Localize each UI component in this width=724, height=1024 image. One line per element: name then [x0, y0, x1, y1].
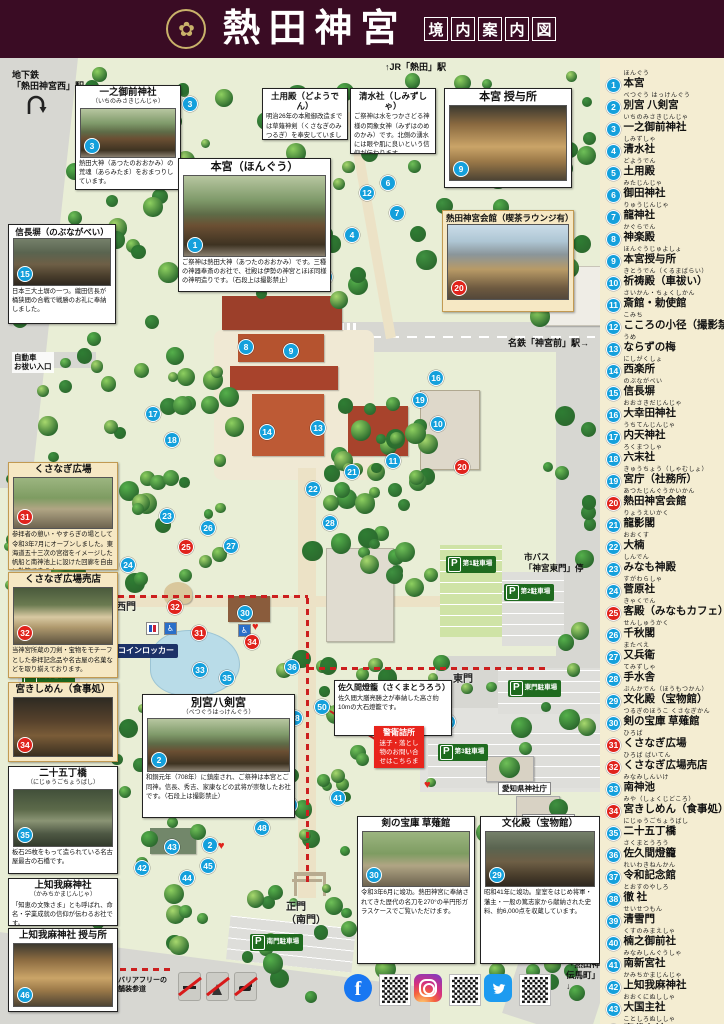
tree	[145, 315, 159, 329]
map-label-コインロッカー: コインロッカー	[114, 644, 178, 658]
tree	[177, 368, 195, 386]
legend-item-15: 15のぶながべい信長塀	[606, 379, 721, 401]
legend-item-name: 千秋閣	[624, 628, 670, 639]
info-box-title: 文化殿（宝物館）	[484, 819, 596, 830]
tree	[543, 462, 553, 472]
info-box-ichinomisaki: 一之御前神社（いちのみさきじんじゃ）3熱田大神（あつたのおおかみ）の荒魂（あらみ…	[75, 85, 181, 190]
map-marker-33: 33	[192, 662, 208, 678]
map-label-line: ↑JR「熱田」駅	[385, 62, 446, 73]
legend-item-name: 六末社	[624, 452, 663, 463]
info-box-title: 清水社（しみずしゃ）	[354, 91, 432, 111]
info-box-desc: 迷子・落とし物のお問い合せはこちらまで	[377, 739, 421, 768]
legend-item-text: きゅうちょう（しゃむしょ）宮庁（社務所）	[624, 467, 709, 485]
legend-item-text: うめならずの梅	[624, 335, 676, 353]
shrine-crest-icon: ✿	[166, 9, 206, 49]
legend-item-text: うちてんじんじゃ内天神社	[624, 423, 676, 441]
legend-item-number: 11	[606, 298, 621, 313]
subtitle-char: 内	[505, 17, 529, 41]
photo-marker-1: 1	[187, 237, 203, 253]
tree	[169, 936, 188, 955]
legend-item-name: 上知我麻神社	[624, 980, 687, 991]
legend-item-number: 27	[606, 650, 621, 665]
legend-item-36: 36さくまとうろう佐久間燈籠	[606, 841, 721, 863]
photo-marker-34: 34	[17, 737, 33, 753]
info-box-photo: 2	[147, 718, 290, 772]
legend-item-text: さくまとうろう佐久間燈籠	[624, 841, 677, 859]
tree	[405, 423, 426, 444]
info-box-kusanagi-hiroba: くさなぎ広場31参拝者の憩い・やすらぎの場として令和3年7月にオープンしました。…	[8, 462, 118, 570]
tree	[314, 925, 329, 940]
legend-item-9: 9ほんぐうじゅよしょ本宮授与所	[606, 247, 721, 269]
legend-item-number: 32	[606, 760, 621, 775]
tree	[342, 161, 354, 173]
map-label-line: 「神宮東門」停	[524, 563, 584, 574]
map-marker-7: 7	[389, 205, 405, 221]
legend-item-text: のぶながべい信長塀	[624, 379, 663, 397]
tree	[559, 709, 580, 730]
info-box-desc: 板石25枚をもって造られている名古屋最古の石橋です。	[12, 848, 114, 866]
legend-item-name: 土用殿	[624, 166, 657, 177]
legend-item-name: 神楽殿	[624, 232, 656, 243]
legend-item-text: どようでん土用殿	[624, 159, 657, 177]
legend-item-39: 39せいせつもん清雪門	[606, 907, 721, 929]
legend-item-text: てみずしゃ手水舎	[624, 665, 657, 683]
legend-item-40: 40くすのみまえしゃ楠之御前社	[606, 929, 721, 951]
map-label-line: 愛知県神社庁	[502, 784, 547, 793]
map-marker-8: 8	[238, 339, 254, 355]
tree	[408, 160, 420, 172]
legend-item-text: おおくにぬししゃ大国主社	[624, 995, 676, 1013]
map-label-自動車: 自動車お祓い入口	[12, 352, 54, 373]
map-label-市バス: 市バス「神宮東門」停	[524, 552, 584, 573]
legend-item-33: 33みなみしんいけ南神池	[606, 775, 721, 797]
legend-item-number: 3	[606, 122, 621, 137]
no-fire-icon	[206, 972, 229, 1001]
legend-item-19: 19きゅうちょう（しゃむしょ）宮庁（社務所）	[606, 467, 721, 489]
legend-item-42: 42かみちかまじんじゃ上知我麻神社	[606, 973, 721, 995]
map-label-第2駐車場: 第2駐車場	[504, 584, 554, 601]
map-marker-36: 36	[284, 659, 300, 675]
photo-marker-29: 29	[489, 867, 505, 883]
map-label-東門駐車場: 東門駐車場	[508, 680, 561, 697]
legend-item-text: おおくす大楠	[624, 533, 650, 551]
page-title: 熱田神宮	[222, 10, 406, 48]
accessible-toilet-icon: ♿	[164, 622, 177, 635]
legend-item-44: 44ことしろぬししゃ事代主社	[606, 1017, 721, 1024]
info-box-desc: 当神宮所蔵の刀剣・宝物をモチーフとした参拝記念品や名古屋の名菓などを取り揃えてお…	[12, 646, 114, 673]
info-box-photo: 15	[13, 238, 111, 286]
info-box-desc: 熱田大神（あつたのおおかみ）の荒魂（あらみたま）をおまつりしています。	[79, 159, 177, 186]
subtitle-char: 図	[532, 17, 556, 41]
tree	[398, 499, 410, 511]
legend-item-name: 斎館・勅使館	[624, 298, 696, 309]
map-marker-17: 17	[145, 406, 161, 422]
tree	[351, 420, 372, 441]
info-box-title: 本宮（ほんぐう）	[182, 161, 327, 174]
legend-item-text: みたじんじゃ御田神社	[624, 181, 666, 199]
legend-item-16: 16おおさきだじんじゃ大幸田神社	[606, 401, 721, 423]
tree	[163, 470, 179, 486]
legend-item-text: きとうでん（くるまばらい）祈祷殿（車祓い）	[624, 269, 708, 287]
map-label-↑JR「熱田」駅: ↑JR「熱田」駅	[385, 62, 446, 73]
map-marker-43: 43	[164, 839, 180, 855]
legend-item-21: 21りょうえいかく龍影閣	[606, 511, 721, 533]
header-subtitle: 境内案内図	[423, 17, 558, 41]
legend-item-name: 祈祷殿（車祓い）	[624, 276, 708, 287]
legend-item-text: ほんぐうじゅよしょ本宮授与所	[624, 247, 682, 265]
info-box-kusanagi-baiten: くさなぎ広場売店32当神宮所蔵の刀剣・宝物をモチーフとした参拝記念品や名古屋の名…	[8, 572, 118, 678]
restroom-icon	[146, 622, 159, 635]
legend-item-name: 南神池	[624, 782, 670, 793]
legend-item-number: 8	[606, 232, 621, 247]
legend-item-text: みや（しょくじどころ）宮きしめん（食事処）	[624, 797, 724, 815]
qr-code	[450, 975, 480, 1005]
legend-item-name: 別宮 八剣宮	[624, 100, 691, 111]
legend-item-number: 35	[606, 826, 621, 841]
map-marker-26: 26	[200, 520, 216, 536]
map-marker-20: 20	[454, 459, 470, 475]
info-box-title: 一之御前神社	[79, 88, 177, 99]
info-box-photo: 20	[447, 224, 569, 300]
barrier-free-route	[306, 598, 309, 670]
map-marker-45: 45	[200, 858, 216, 874]
map-marker-44: 44	[179, 870, 195, 886]
legend-item-22: 22おおくす大楠	[606, 533, 721, 555]
info-box-nobunagabei: 信長塀（のぶながべい）15日本三大土塀の一つ。織田信長が桶狭間の合戦で戦勝のお礼…	[8, 224, 116, 324]
tree	[91, 360, 103, 372]
tree	[119, 786, 131, 798]
tree	[179, 905, 192, 918]
map-label-第3駐車場: 第3駐車場	[438, 744, 488, 761]
tree	[499, 757, 520, 778]
tree	[360, 555, 379, 574]
legend-item-name: 佐久間燈籠	[624, 848, 677, 859]
tree	[302, 541, 323, 562]
legend-item-number: 13	[606, 342, 621, 357]
tree	[179, 569, 192, 582]
tree	[119, 719, 138, 738]
tree	[364, 403, 376, 415]
legend-item-5: 5どようでん土用殿	[606, 159, 721, 181]
info-box-desc: 明治26年の本殿御改造までは草薙神剣（くさなぎのみつるぎ）を奉安していました。	[266, 112, 344, 140]
legend-item-number: 39	[606, 914, 621, 929]
legend-item-name: 菅原社	[624, 584, 663, 595]
legend-item-text: おおさきだじんじゃ大幸田神社	[624, 401, 683, 419]
map-label-line: （南門）	[286, 915, 326, 928]
info-box-miyakishimen: 宮きしめん（食事処）34	[8, 682, 118, 762]
info-box-photo: 31	[13, 477, 113, 529]
legend-item-name: 本宮授与所	[624, 254, 682, 265]
legend-item-text: あつたじんぐうかいかん熱田神宮会館	[624, 489, 695, 507]
legend-item-text: きゃくでん客殿（みなもカフェ）	[624, 599, 724, 617]
tree	[581, 422, 596, 437]
tree	[106, 195, 118, 207]
tree	[215, 89, 233, 107]
info-box-title: 剣の宝庫 草薙館	[361, 819, 471, 830]
legend-item-name: 内天神社	[624, 430, 676, 441]
info-box-photo: 32	[13, 587, 113, 645]
map-marker-12: 12	[359, 185, 375, 201]
legend-item-number: 16	[606, 408, 621, 423]
legend-item-number: 26	[606, 628, 621, 643]
legend-item-20: 20あつたじんぐうかいかん熱田神宮会館	[606, 489, 721, 511]
tree	[134, 363, 149, 378]
subtitle-char: 内	[451, 17, 475, 41]
legend-item-number: 36	[606, 848, 621, 863]
legend-item-text: れいわきねんかん令和記念館	[624, 863, 677, 881]
photo-marker-3: 3	[84, 138, 100, 154]
tree	[141, 831, 158, 848]
legend-item-name: 手水舎	[624, 672, 657, 683]
map-label-line: お祓い入口	[14, 362, 52, 371]
legend-item-text: しみずしゃ清水社	[624, 137, 657, 155]
photo-marker-2: 2	[151, 752, 167, 768]
barrier-free-route	[118, 595, 308, 598]
legend-item-number: 15	[606, 386, 621, 401]
map-label-地下鉄: 地下鉄「熱田神宮西」駅	[12, 70, 84, 93]
legend-item-number: 18	[606, 452, 621, 467]
tree	[558, 634, 574, 650]
legend-item-name: 信長塀	[624, 386, 663, 397]
legend-item-number: 9	[606, 254, 621, 269]
tree	[369, 539, 380, 550]
tree	[331, 533, 351, 553]
info-box-photo: 1	[183, 175, 326, 257]
tree	[101, 376, 117, 392]
info-box-keiei: 警衛詰所迷子・落とし物のお問い合せはこちらまで	[374, 726, 424, 768]
legend-item-number: 24	[606, 584, 621, 599]
legend-item-11: 11さいかん・ちょくしかん斎館・勅使館	[606, 291, 721, 313]
aed-heart-icon: ♥	[424, 780, 431, 791]
info-box-title: 信長塀（のぶながべい）	[12, 227, 112, 237]
map-label-line: 市バス	[524, 552, 584, 563]
info-box-photo: 34	[13, 697, 113, 757]
map-marker-6: 6	[380, 175, 396, 191]
legend-item-number: 1	[606, 78, 621, 93]
tree	[371, 463, 382, 474]
info-box-kaikan: 熱田神宮会館（喫茶ラウンジ有）20	[442, 210, 574, 312]
legend-item-name: 一之御前神社	[624, 122, 689, 133]
legend-item-text: せんしゅうかく千秋閣	[624, 621, 670, 639]
barrier-free-legend-sample	[120, 968, 172, 971]
tree	[68, 211, 82, 225]
no-smoking-icon	[178, 972, 201, 1001]
info-box-title: 別宮八剣宮	[146, 697, 291, 710]
map-label-第1駐車場: 第1駐車場	[446, 556, 496, 573]
info-box-kamichikama-juyosho: 上知我麻神社 授与所46	[8, 928, 118, 1012]
map-label-東門: 東門	[453, 674, 473, 687]
info-box-title: くさなぎ広場	[12, 465, 114, 476]
tree	[355, 493, 375, 513]
legend-item-number: 30	[606, 716, 621, 731]
map-marker-31: 31	[191, 625, 207, 641]
map-marker-9: 9	[283, 343, 299, 359]
map-label-line: 自動車	[14, 353, 52, 362]
tree	[322, 884, 331, 893]
map-marker-10: 10	[430, 416, 446, 432]
legend-item-7: 7りゅうじんじゃ龍神社	[606, 203, 721, 225]
barrier-free-legend-label: バリアフリーの舗装参道	[118, 976, 167, 994]
map-marker-13: 13	[310, 420, 326, 436]
photo-marker-46: 46	[17, 987, 33, 1003]
legend-item-name: 南新宮社	[624, 958, 682, 969]
info-box-photo: 9	[449, 105, 567, 181]
info-box-title: くさなぎ広場売店	[12, 575, 114, 586]
info-box-furigana: （かみちかまじんじゃ）	[12, 892, 114, 899]
tree	[131, 245, 145, 259]
legend-item-number: 33	[606, 782, 621, 797]
legend-item-38: 38とおすのやしろ徹 社	[606, 885, 721, 907]
legend-item-name: 二十五丁橋	[624, 826, 689, 837]
legend-item-12: 12こみちこころの小径（撮影禁止）	[606, 313, 721, 335]
legend-item-name: 令和記念館	[624, 870, 677, 881]
legend-item-name: みなも神殿	[624, 562, 677, 573]
legend-item-name: 龍神社	[624, 210, 670, 221]
tree	[320, 657, 337, 674]
legend-item-text: つるぎのほうこ くさなぎかん剣の宝庫 草薙館	[624, 709, 711, 727]
tree	[143, 197, 163, 217]
tree	[263, 953, 283, 973]
legend-item-number: 7	[606, 210, 621, 225]
legend-item-2: 2べつぐう はっけんぐう別宮 八剣宮	[606, 93, 721, 115]
tree	[583, 132, 596, 145]
tree	[168, 372, 178, 382]
tree	[577, 146, 596, 165]
header-banner: ✿ 熱田神宮 境内案内図	[0, 0, 724, 58]
photo-marker-31: 31	[17, 509, 33, 525]
map-label-西門: 西門	[116, 602, 136, 615]
info-box-hongu-juyosho: 本宮 授与所9	[444, 88, 572, 188]
legend-item-4: 4しみずしゃ清水社	[606, 137, 721, 159]
map-label-line: 地下鉄	[12, 70, 84, 81]
info-box-hongu: 本宮（ほんぐう）1ご祭神は熱田大神（あつたのおおかみ）です。三種の神器奉斎のお社…	[178, 158, 331, 292]
legend-item-number: 38	[606, 892, 621, 907]
info-box-title: 土用殿（どようでん）	[266, 91, 344, 111]
map-marker-19: 19	[412, 392, 428, 408]
legend-item-name: 西楽所	[624, 364, 663, 375]
legend-item-32: 32ひろば ばいてんくさなぎ広場売店	[606, 753, 721, 775]
legend-item-37: 37れいわきねんかん令和記念館	[606, 863, 721, 885]
legend-item-text: いちのみさきじんじゃ一之御前神社	[624, 115, 689, 133]
legend-item-number: 23	[606, 562, 621, 577]
tree	[242, 951, 254, 963]
subtitle-char: 境	[424, 17, 448, 41]
legend-item-10: 10きとうでん（くるまばらい）祈祷殿（車祓い）	[606, 269, 721, 291]
info-box-desc: 「知恵の文殊さま」とも呼ばれ、命名・学業成就の信仰が伝わるお社です。	[12, 901, 114, 926]
tree	[225, 417, 245, 437]
legend-item-number: 12	[606, 320, 621, 335]
legend-item-name: 御田神社	[624, 188, 666, 199]
legend-item-number: 34	[606, 804, 621, 819]
legend-item-name: 宮庁（社務所）	[624, 474, 709, 485]
map-label-line: 正門	[286, 902, 326, 915]
legend-item-28: 28てみずしゃ手水舎	[606, 665, 721, 687]
legend-item-number: 20	[606, 496, 621, 511]
tree	[416, 250, 437, 271]
legend-item-14: 14にしがくしょ西楽所	[606, 357, 721, 379]
tree	[511, 717, 532, 738]
legend-item-number: 31	[606, 738, 621, 753]
map-label-line: 「熱田神宮西」駅	[12, 81, 84, 92]
legend-item-text: しんでんみなも神殿	[624, 555, 677, 573]
uturn-arrow-icon	[24, 94, 48, 116]
legend-item-31: 31ひろばくさなぎ広場	[606, 731, 721, 753]
legend-item-8: 8かぐらでん神楽殿	[606, 225, 721, 247]
map-marker-18: 18	[164, 432, 180, 448]
subtitle-char: 案	[478, 17, 502, 41]
info-box-title: 宮きしめん（食事処）	[12, 685, 114, 696]
map-label-正門: 正門（南門）	[286, 902, 326, 927]
map-marker-32: 32	[167, 599, 183, 615]
info-box-desc: 昭和41年に竣功。皇室をはじめ将軍・藩主・一般の篤志家から献納された史料、約6,…	[484, 888, 596, 915]
info-box-kamichikama: 上知我麻神社（かみちかまじんじゃ）「知恵の文殊さま」とも呼ばれ、命名・学業成就の…	[8, 878, 118, 926]
legend-item-text: にじゅうごちょうばし二十五丁橋	[624, 819, 689, 837]
legend-item-number: 42	[606, 980, 621, 995]
legend-item-number: 43	[606, 1002, 621, 1017]
legend-item-text: ろくまつしゃ六末社	[624, 445, 663, 463]
pamphlet-page: ♥ ♥ ♥ ♿ ♿ ♿ バリアフリーの舗装参道 地下鉄「熱田神宮伝馬町」駅↓ 3…	[0, 0, 724, 1024]
legend-item-25: 25きゃくでん客殿（みなもカフェ）	[606, 599, 721, 621]
map-marker-35: 35	[219, 670, 235, 686]
tree	[179, 477, 190, 488]
legend-list: 1ほんぐう本宮2べつぐう はっけんぐう別宮 八剣宮3いちのみさきじんじゃ一之御前…	[606, 71, 721, 1024]
legend-item-name: 客殿（みなもカフェ）	[624, 606, 724, 617]
info-box-desc: 佐久間大膳亮勝之が奉納した高さ約10mの大石燈籠です。	[338, 694, 448, 712]
legend-item-number: 41	[606, 958, 621, 973]
info-box-title: 上知我麻神社	[12, 881, 114, 892]
barrier-free-route	[306, 670, 309, 882]
legend-item-text: みなみしんぐうしゃ南新宮社	[624, 951, 682, 969]
map-marker-22: 22	[305, 481, 321, 497]
tree	[331, 769, 345, 783]
map-label-line: コインロッカー	[118, 646, 174, 656]
tree	[356, 753, 369, 766]
info-box-title: 二十五丁橋	[12, 769, 114, 780]
info-box-doyoden: 土用殿（どようでん）明治26年の本殿御改造までは草薙神剣（くさなぎのみつるぎ）を…	[262, 88, 348, 140]
info-box-desc: ご祭神は熱田大神（あつたのおおかみ）です。三種の神器奉斎のお社で、社殿は伊勢の神…	[182, 258, 327, 285]
map-marker-27: 27	[223, 538, 239, 554]
legend-item-text: ほんぐう本宮	[624, 71, 650, 89]
photo-marker-9: 9	[453, 161, 469, 177]
info-box-title: 佐久間燈籠（さくまとうろう）	[338, 683, 448, 693]
legend-item-35: 35にじゅうごちょうばし二十五丁橋	[606, 819, 721, 841]
legend-item-text: かぐらでん神楽殿	[624, 225, 656, 243]
photo-marker-35: 35	[17, 827, 33, 843]
tree	[409, 470, 424, 485]
legend-item-27: 27またべえ又兵衛	[606, 643, 721, 665]
facebook-icon	[344, 974, 372, 1002]
info-box-photo: 30	[362, 831, 470, 887]
legend-item-number: 19	[606, 474, 621, 489]
map-marker-2: 2	[202, 837, 218, 853]
tree	[201, 396, 219, 414]
tree	[338, 398, 353, 413]
legend-item-name: 清雪門	[624, 914, 663, 925]
legend-item-text: こみちこころの小径（撮影禁止）	[624, 313, 724, 331]
legend-item-name: 楠之御前社	[624, 936, 677, 947]
map-label-名鉄「神宮前」駅→: 名鉄「神宮前」駅→	[508, 338, 589, 349]
legend-item-text: みなみしんいけ南神池	[624, 775, 670, 793]
tree	[567, 663, 580, 676]
info-box-photo: 3	[80, 108, 176, 158]
info-box-desc: 令和3年6月に竣功。熱田神宮に奉納されてきた歴代の名刀を270°の半円形ガラスケ…	[361, 888, 471, 915]
info-box-desc: 日本三大土塀の一つ。織田信長が桶狭間の合戦で戦勝のお礼に奉納しました。	[12, 287, 112, 314]
legend-sidebar: 1ほんぐう本宮2べつぐう はっけんぐう別宮 八剣宮3いちのみさきじんじゃ一之御前…	[600, 58, 724, 1024]
info-box-title: 上知我麻神社 授与所	[12, 931, 114, 942]
legend-item-number: 2	[606, 100, 621, 115]
legend-item-text: にしがくしょ西楽所	[624, 357, 663, 375]
info-box-desc: ご祭神は水をつかさどる神様の罔象女神（みずはのめのかみ）です。北側の湧水には眼や…	[354, 112, 432, 154]
